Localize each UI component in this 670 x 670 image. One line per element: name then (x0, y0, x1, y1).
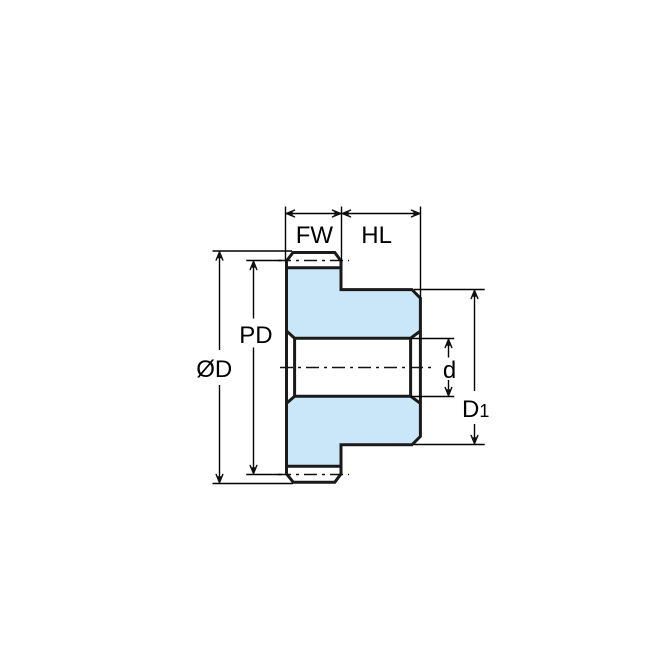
svg-text:FW: FW (296, 222, 334, 249)
svg-text:D1: D1 (462, 396, 489, 423)
svg-text:HL: HL (361, 222, 392, 249)
svg-text:PD: PD (239, 322, 272, 349)
svg-text:d: d (443, 357, 456, 384)
svg-text:ØD: ØD (196, 356, 232, 383)
